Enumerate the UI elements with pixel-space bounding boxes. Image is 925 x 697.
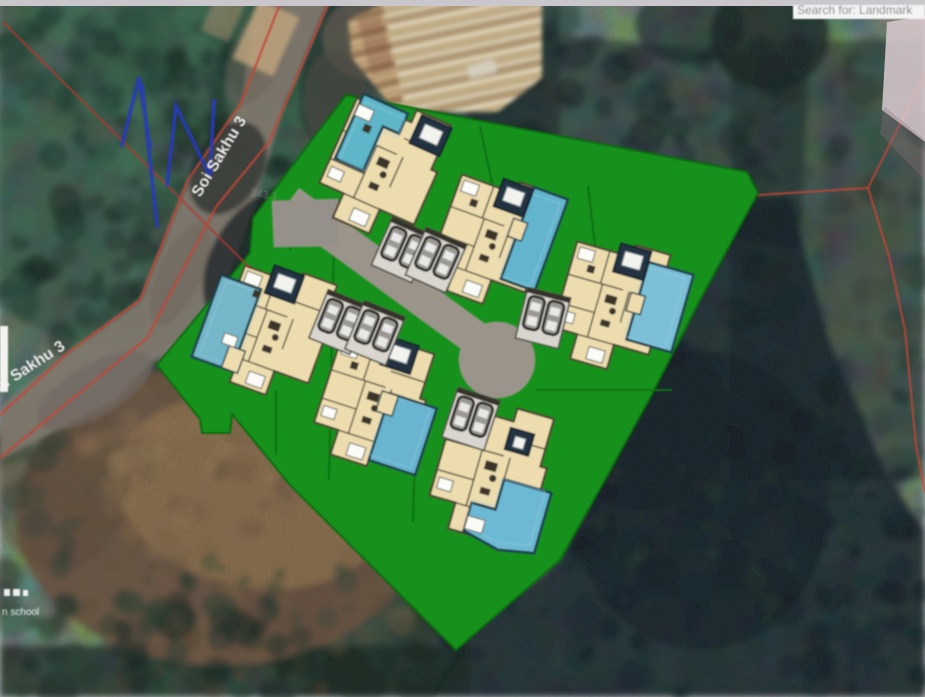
svg-text:n school: n school <box>2 607 39 618</box>
svg-text:Search for: Landmark: Search for: Landmark <box>797 3 913 17</box>
